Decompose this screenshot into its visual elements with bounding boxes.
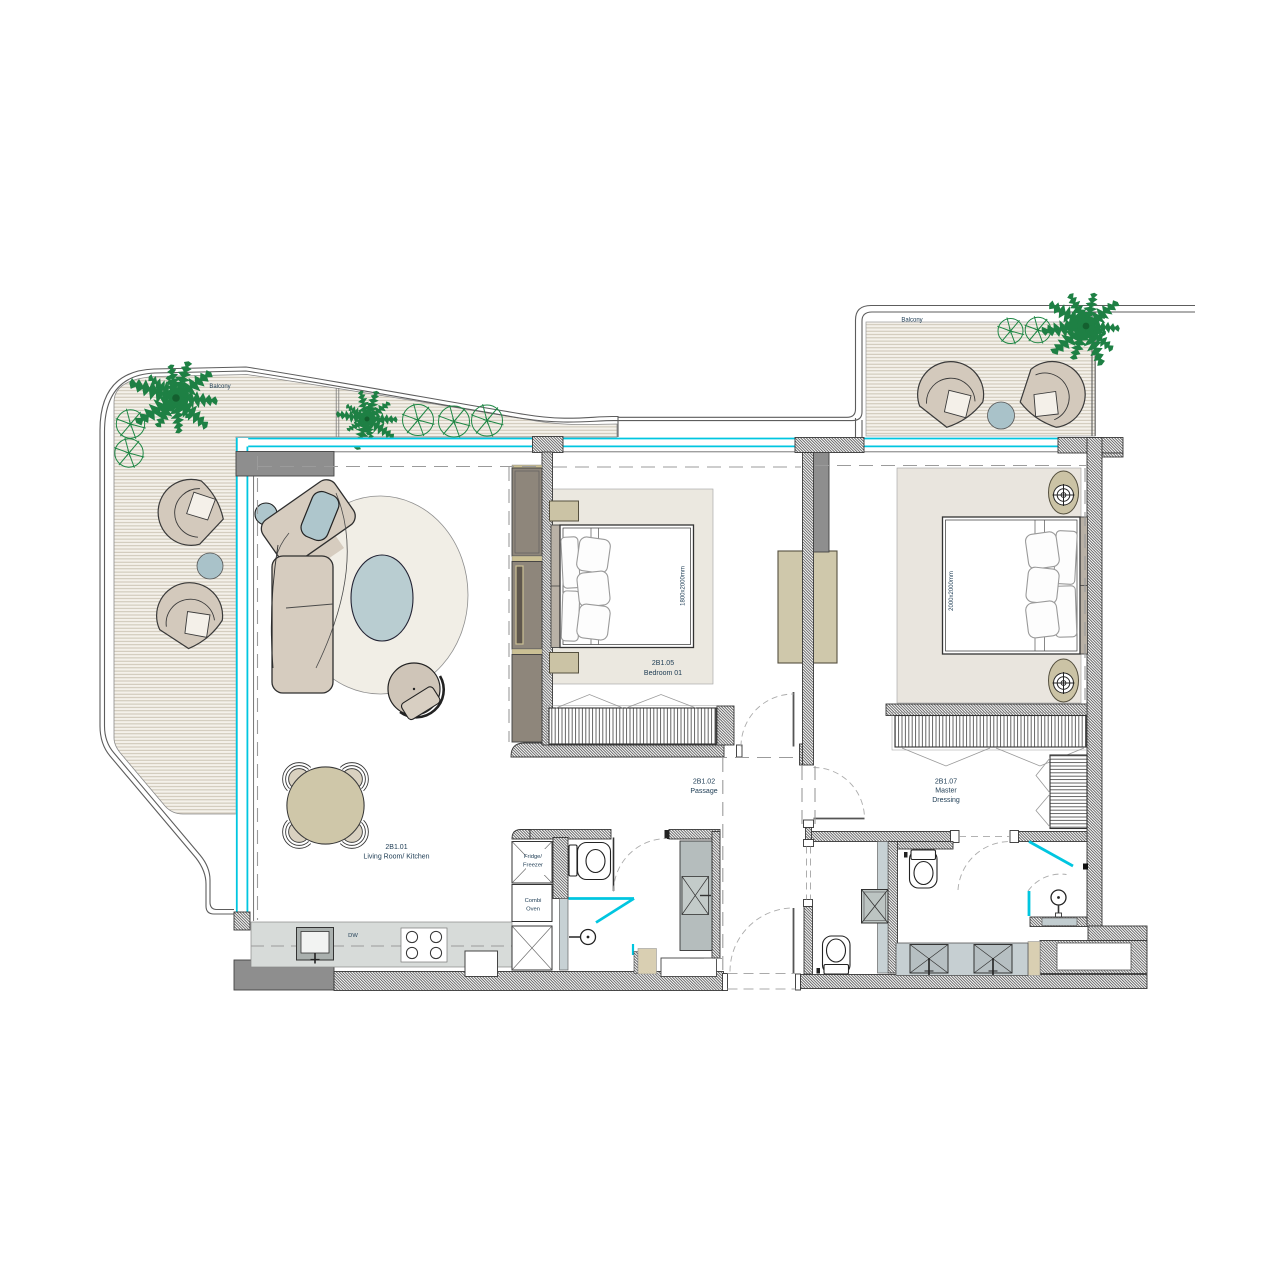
svg-text:Combi: Combi [525,898,542,904]
svg-text:Dressing: Dressing [932,797,960,804]
svg-text:DW: DW [348,933,358,939]
svg-text:Fridge/: Fridge/ [524,854,542,860]
svg-text:2B1.07: 2B1.07 [935,779,957,786]
svg-text:Bedroom 01: Bedroom 01 [644,670,682,677]
svg-text:2B1.05: 2B1.05 [652,660,674,667]
svg-text:Living Room/ Kitchen: Living Room/ Kitchen [363,854,429,861]
svg-text:2B1.02: 2B1.02 [693,779,715,786]
svg-text:Master: Master [935,788,957,795]
svg-text:1800x2000mm: 1800x2000mm [681,566,687,606]
svg-text:Passage: Passage [690,788,717,795]
svg-text:Balcony: Balcony [901,318,922,324]
svg-text:2000x2000mm: 2000x2000mm [949,571,955,611]
svg-text:Oven: Oven [526,907,540,913]
svg-text:Freezer: Freezer [523,863,543,869]
svg-text:2B1.01: 2B1.01 [385,844,407,851]
svg-text:Balcony: Balcony [209,384,230,390]
